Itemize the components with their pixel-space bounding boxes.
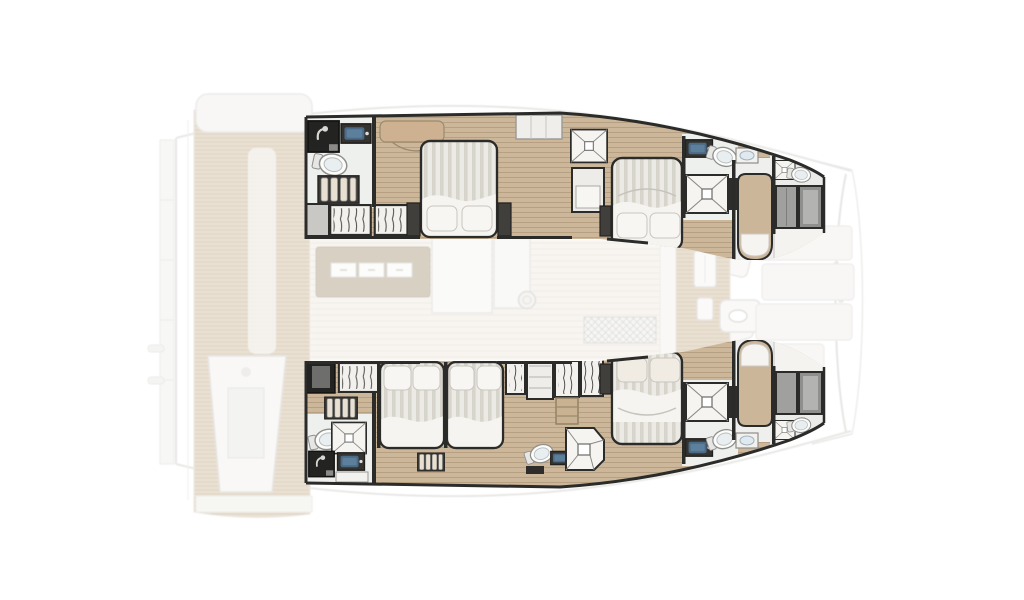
- bulkhead: [772, 366, 776, 444]
- pillow: [384, 366, 411, 390]
- double-bed: [380, 362, 444, 448]
- floorplan-canvas: [0, 0, 1024, 600]
- double-bed: [447, 362, 503, 448]
- galley-island: [316, 247, 430, 297]
- bedside-unit: [600, 364, 611, 394]
- sill: [526, 466, 544, 474]
- wardrobe-icon: [506, 362, 525, 394]
- ladder-rung: [148, 377, 164, 384]
- cabinet: [516, 115, 562, 139]
- wardrobe-icon: [339, 363, 378, 392]
- cushioned-locker: [776, 372, 797, 414]
- island-drawer: [359, 263, 384, 277]
- pillow: [450, 366, 474, 390]
- bulkhead: [372, 115, 376, 207]
- shower-cubicle-icon: [308, 121, 339, 152]
- pillow: [477, 366, 501, 390]
- washbasin-icon: [338, 453, 365, 470]
- island-drawer: [387, 263, 412, 277]
- companionway-steps: [318, 176, 359, 203]
- deck-hatch: [519, 292, 536, 309]
- bulkhead: [377, 362, 381, 448]
- dinette-table: [584, 317, 656, 343]
- double-bed: [421, 141, 497, 237]
- companionway-steps: [325, 397, 358, 419]
- washbasin-icon: [341, 124, 371, 143]
- bulkhead: [732, 160, 736, 262]
- washbasin-icon: [736, 148, 758, 163]
- bulkhead: [682, 136, 686, 218]
- cabinet: [306, 204, 329, 236]
- shower-cubicle-icon: [309, 451, 335, 477]
- shelf-unit: [556, 398, 578, 424]
- single-berth: [738, 174, 772, 260]
- pillow: [617, 213, 647, 238]
- foredeck-hatch: [697, 298, 713, 320]
- transom-seat: [196, 496, 312, 512]
- pillow: [650, 213, 680, 238]
- companionway-steps: [418, 453, 445, 471]
- bulkhead: [772, 156, 776, 234]
- double-bed: [612, 158, 682, 250]
- locker: [307, 361, 335, 393]
- pillow: [650, 358, 680, 382]
- washbasin-icon: [736, 433, 758, 448]
- bulkhead: [732, 338, 736, 440]
- bedside-unit: [407, 203, 420, 236]
- double-bed: [612, 352, 682, 444]
- shower-tray-icon: [332, 422, 366, 453]
- cockpit-walkway: [248, 148, 276, 354]
- island-drawer: [331, 263, 356, 277]
- pillow: [413, 366, 440, 390]
- bulkhead: [372, 393, 376, 485]
- bench: [336, 472, 368, 482]
- shower-tray-icon: [566, 428, 604, 470]
- ladder-rung: [148, 345, 164, 352]
- aft-bench: [196, 94, 312, 132]
- cockpit: [194, 94, 312, 518]
- pillow: [427, 206, 457, 231]
- wardrobe-icon: [330, 205, 371, 235]
- shower-tray-icon: [686, 383, 728, 421]
- galley-counter: [432, 229, 492, 313]
- single-berth: [738, 340, 772, 426]
- shower-tray-icon: [686, 175, 728, 213]
- bulkhead: [682, 382, 686, 464]
- bedside-unit: [498, 203, 511, 236]
- pillow: [462, 206, 492, 231]
- catamaran-floorplan: [0, 0, 1024, 600]
- wardrobe-icon: [555, 361, 579, 397]
- shower-tray-icon: [571, 130, 607, 163]
- pillow: [617, 358, 647, 382]
- swim-platform: [148, 140, 174, 464]
- bedside-unit: [600, 206, 611, 236]
